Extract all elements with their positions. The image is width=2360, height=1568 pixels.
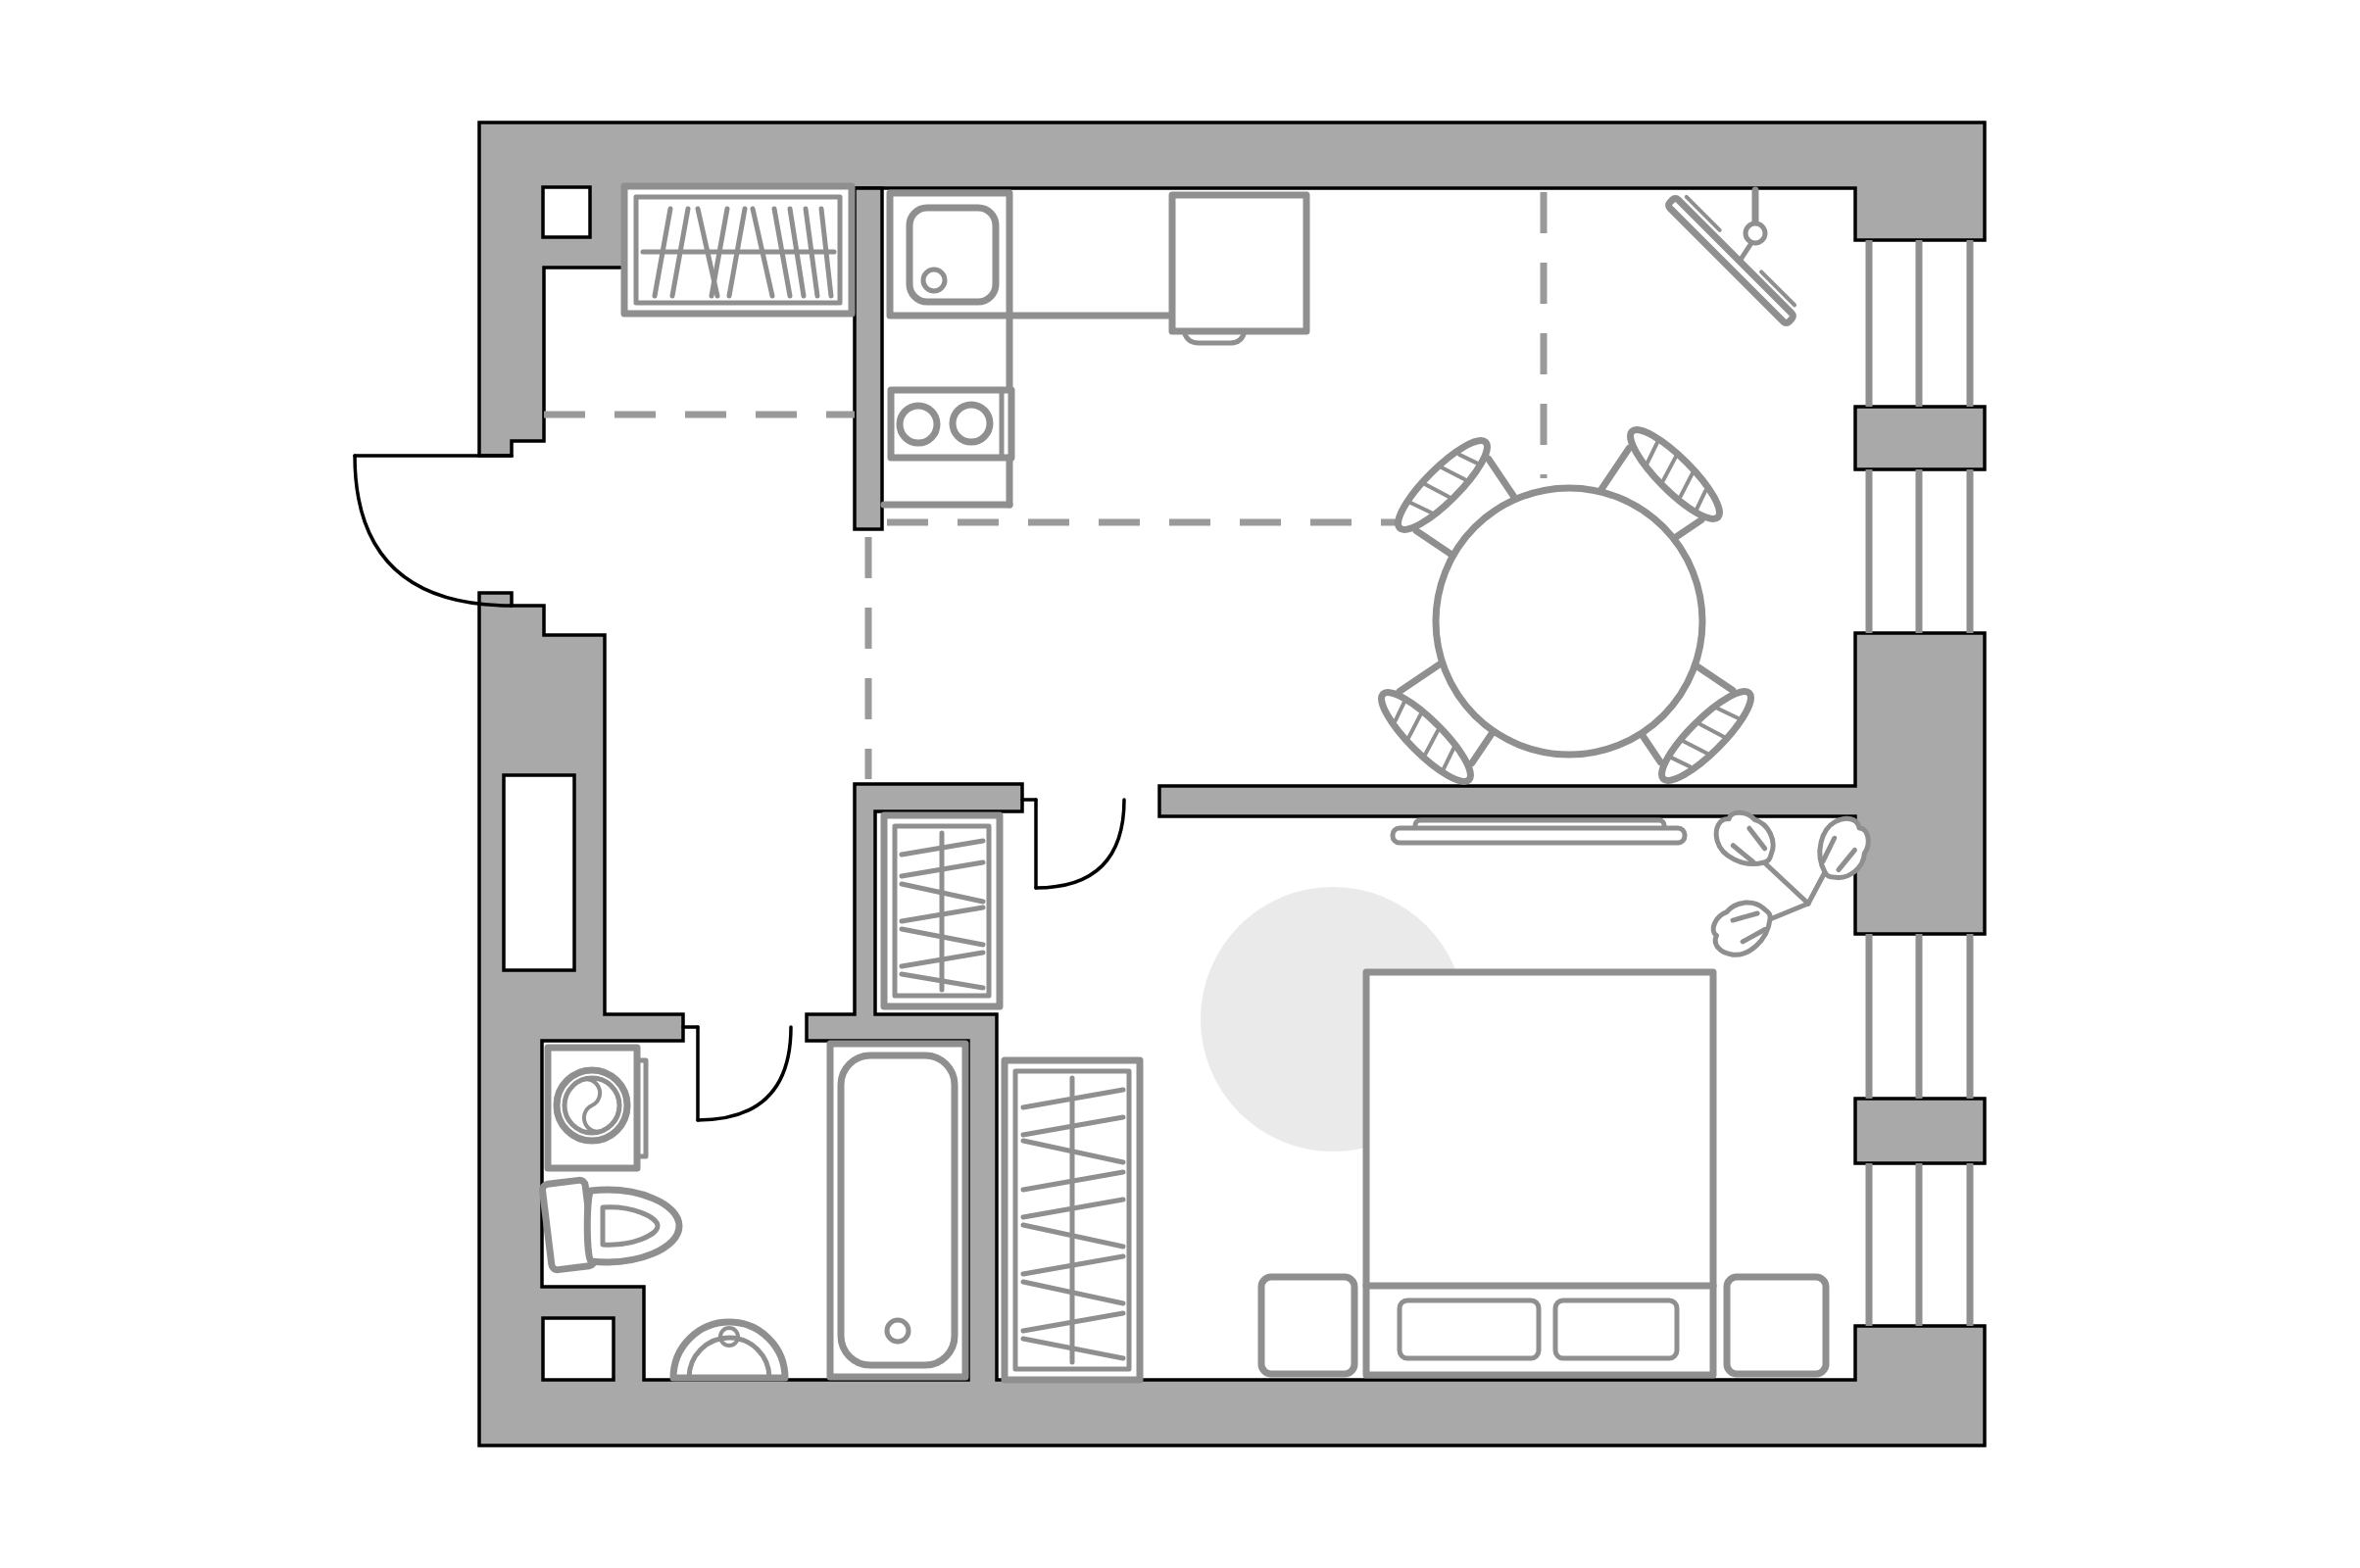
- bathroom-door: [683, 1027, 791, 1120]
- toilet: [542, 1180, 679, 1271]
- bed-drawer-right: [1555, 1300, 1677, 1358]
- wall-tv: [1667, 190, 1800, 324]
- entry-wardrobe: [624, 186, 852, 314]
- niche-bathroom-shaft: [543, 1318, 614, 1380]
- floor-plan-page: [0, 0, 2360, 1568]
- monstera-plant: [1705, 802, 1879, 961]
- hall-wardrobe: [884, 815, 1000, 1006]
- wall-pier-dining: [1855, 407, 1985, 469]
- tv-bracket-pivot: [1745, 223, 1765, 243]
- bathroom-door-swing-arc: [698, 1027, 791, 1120]
- window-bay-4: [1869, 1163, 1970, 1326]
- kitchen-sink: [890, 193, 1009, 316]
- entry-door-swing-arc: [355, 456, 512, 606]
- bedroom-door-swing-arc: [1036, 800, 1124, 888]
- nightstand-left: [1261, 1277, 1354, 1374]
- refrigerator: [1172, 195, 1306, 343]
- hand-basin: [673, 1322, 785, 1378]
- window-bay-3: [1869, 934, 1970, 1099]
- kitchen: [884, 193, 1306, 505]
- wall-shelf: [1393, 820, 1685, 843]
- niche-top-left: [543, 187, 590, 237]
- niche-left-shaft: [504, 775, 574, 970]
- window-bay-2: [1869, 469, 1970, 633]
- tv-screen: [1667, 197, 1795, 324]
- washing-machine: [548, 1048, 646, 1168]
- bedroom-wardrobe: [1005, 1060, 1140, 1380]
- window-bay-1: [1869, 240, 1970, 407]
- bed-drawer-left: [1400, 1300, 1539, 1358]
- washer-door-hinge: [637, 1060, 646, 1156]
- entry-door: [355, 456, 512, 606]
- apartment-floor-plan: [0, 0, 2360, 1568]
- nightstand-right: [1727, 1277, 1826, 1374]
- round-dining-table: [1436, 488, 1702, 755]
- cooktop: [891, 390, 1011, 458]
- dining-area: [1371, 190, 1800, 792]
- wall-pier-bedroom: [1855, 1099, 1985, 1163]
- wall-kitchen-column: [855, 188, 882, 529]
- bathtub: [830, 1044, 965, 1377]
- bedroom: [1005, 800, 1880, 1380]
- bedroom-door: [1022, 800, 1124, 888]
